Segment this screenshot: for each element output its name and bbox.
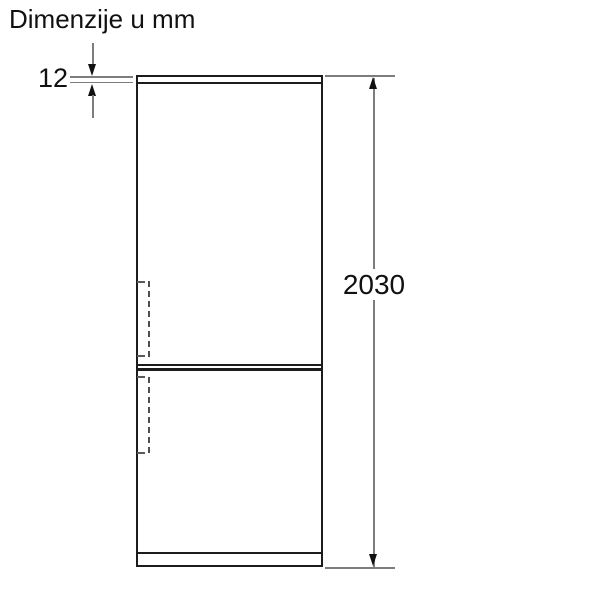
door-dashed-line-upper — [148, 281, 150, 358]
arrowhead-up-icon — [88, 84, 96, 96]
hinge-tick-1 — [137, 281, 145, 283]
leader-line-12-bottom — [92, 95, 94, 118]
extension-line-12-bottom — [70, 82, 133, 84]
arrowhead-down-icon — [369, 554, 377, 566]
dimension-label-overall-height: 2030 — [332, 269, 416, 300]
top-panel-line — [138, 82, 321, 84]
dimension-label-top-thickness: 12 — [28, 63, 68, 93]
dimension-line-2030 — [373, 78, 375, 567]
door-dashed-line-lower — [148, 377, 150, 455]
extension-line-12-top — [70, 76, 133, 78]
arrowhead-up-icon — [369, 77, 377, 89]
leader-line-12-top — [92, 43, 94, 64]
compartment-divider-line-lower — [138, 368, 321, 370]
extension-line-2030-top — [325, 75, 395, 77]
plinth-line — [138, 552, 321, 554]
hinge-tick-4 — [137, 452, 145, 454]
hinge-tick-2 — [137, 355, 145, 357]
diagram-canvas: Dimenzije u mm 12 2030 — [0, 0, 600, 600]
compartment-divider-line-upper — [138, 364, 321, 366]
extension-line-2030-bottom — [325, 567, 395, 569]
diagram-title: Dimenzije u mm — [9, 4, 195, 34]
arrowhead-down-icon — [88, 64, 96, 76]
appliance-outline — [136, 75, 323, 567]
hinge-tick-3 — [137, 376, 145, 378]
